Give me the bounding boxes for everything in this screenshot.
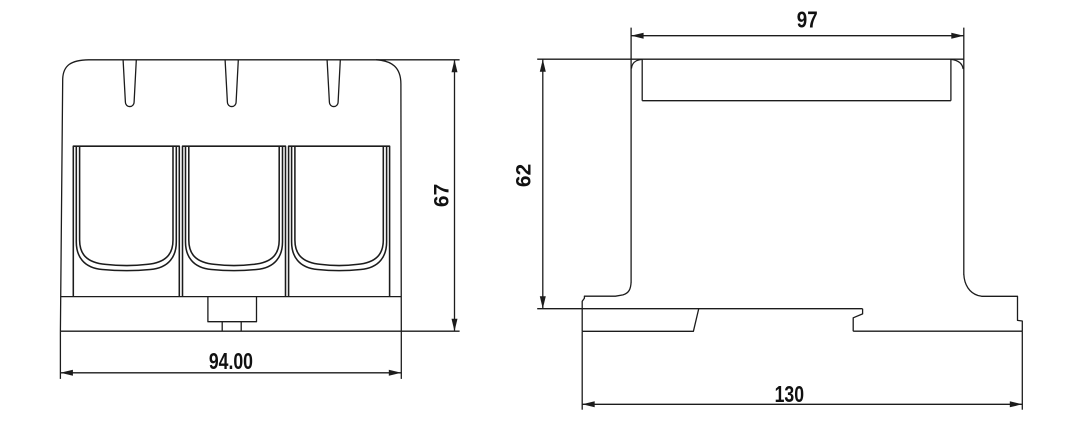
svg-text:67: 67 <box>431 184 454 207</box>
svg-text:94.00: 94.00 <box>209 349 253 375</box>
svg-text:97: 97 <box>797 7 818 34</box>
svg-text:62: 62 <box>513 164 536 187</box>
svg-text:130: 130 <box>775 382 804 408</box>
